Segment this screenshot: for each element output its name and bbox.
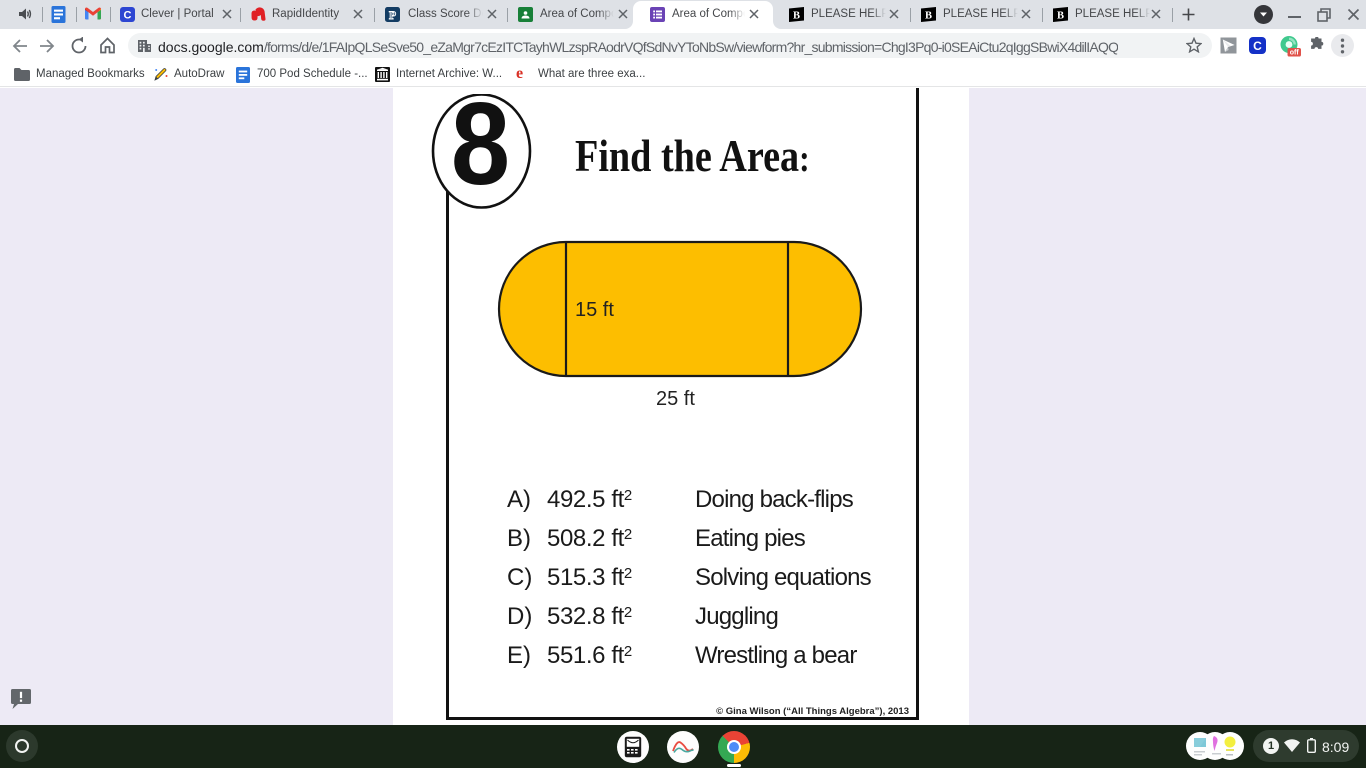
svg-text:B: B: [925, 11, 932, 22]
svg-text:B: B: [793, 11, 800, 22]
svg-text:C: C: [124, 9, 132, 21]
svg-text:8: 8: [451, 94, 510, 209]
svg-text:P: P: [389, 10, 396, 22]
svg-text:off: off: [1290, 50, 1300, 57]
svg-text:B: B: [1057, 11, 1064, 22]
svg-text:C: C: [1253, 39, 1262, 53]
